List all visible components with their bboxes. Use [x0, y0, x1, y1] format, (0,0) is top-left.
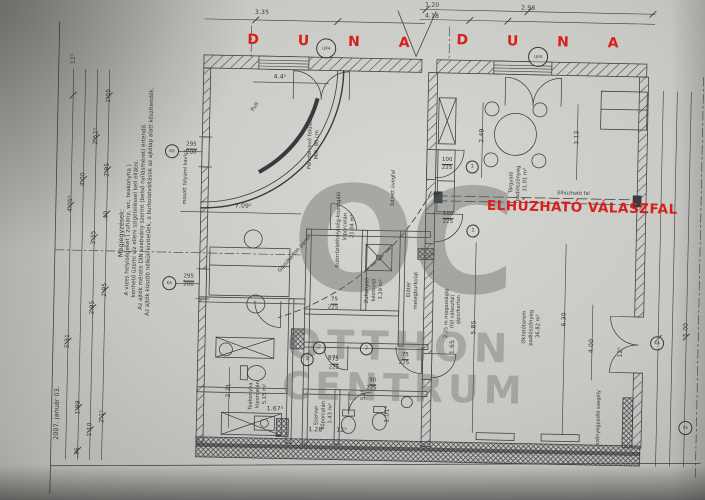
label-room-21: Teakonyha	[249, 382, 255, 410]
scanned-floor-plan-sheet: OCOTTHONCENTRUMD U N AD U N AELHÚZHATÓ V…	[0, 0, 705, 500]
sliding-partition-label: ELHÚZHATÓ VÁLASZFAL	[487, 200, 678, 217]
label-room-26: 1.43 m²	[328, 403, 334, 423]
label-dim-44: 1.05	[106, 89, 112, 103]
duna-label-left: D U N A	[247, 33, 426, 51]
label-dim-71: 1.67⁵	[267, 406, 284, 412]
label-dim-52: 2.95	[90, 300, 96, 314]
label-fden-92: 200	[183, 282, 194, 288]
label-room-33: padlószőnyeg	[529, 310, 535, 346]
label-fden-90: 225	[443, 220, 454, 226]
label-dim-59: 1.20	[425, 2, 439, 8]
label-dim-55: 2.1⁵	[99, 410, 105, 423]
label-dim-68: 4.00	[589, 339, 595, 353]
label-dim-69: 5.00	[683, 323, 689, 337]
label-dim-47: 4.00	[80, 172, 86, 186]
label-circ2-102: K4	[650, 336, 664, 350]
label-dim-46: 2.95	[104, 163, 110, 177]
watermark-centrum: CENTRUM	[282, 367, 527, 410]
sliding-partition-small-label: Elhúzható fal	[557, 191, 590, 197]
label-dim-76: 1.01⁵	[384, 406, 390, 423]
label-dim-58: 3.35	[255, 10, 269, 16]
label-dim-56: 1.10	[87, 422, 93, 436]
label-fden-86: 225	[366, 386, 377, 392]
label-dim-70: 2.21	[226, 383, 232, 397]
label-room-38: Mfé: 90 cm	[315, 130, 321, 159]
label-dim-78: 12⁵	[618, 347, 624, 358]
label-room-37: Pénzfelvevő felület	[308, 120, 314, 169]
label-room-22: klporcelán	[256, 381, 262, 408]
label-room-31: 31.01 m²	[523, 168, 529, 192]
label-dim-48: 4.05⁵	[68, 195, 74, 212]
label-dim-51: 2.95	[102, 283, 108, 297]
label-dim-60: 4.18	[425, 13, 439, 19]
duna-label-right: D U N A	[456, 33, 635, 51]
label-room-29: Tárgyaló	[509, 172, 515, 194]
label-dim-43: 12⁵	[71, 53, 77, 64]
label-room-32: Oktatóterem	[522, 311, 528, 344]
label-room-30: padlószőnyeg	[516, 166, 522, 202]
label-room-27: Előtér	[407, 282, 413, 297]
label-room-18: Zuhanyzó	[365, 278, 371, 304]
label-circ2-103: F4	[678, 421, 692, 435]
label-fden-94: 200	[186, 151, 197, 157]
plan-rotation-wrapper: OCOTTHONCENTRUMD U N AD U N AELHÚZHATÓ V…	[0, 0, 705, 500]
label-circ2-100: K6	[162, 276, 176, 290]
label-dim-62: 4.4⁵	[274, 74, 287, 80]
label-room-17: 21.04 m²	[350, 214, 356, 238]
label-room-24: Szerver	[314, 406, 320, 426]
label-fden-88: 225	[442, 166, 453, 172]
label-dim-64: 2.49	[479, 128, 485, 142]
label-room-16: klporcelán	[343, 213, 349, 240]
label-room-28: melegburkolat	[414, 272, 420, 310]
date-note: 2007. január 03.	[53, 386, 61, 440]
label-room-23: 5.15 m²	[263, 384, 269, 404]
label-dim-77: 1.65	[450, 340, 456, 354]
label-dim-49: 3.35	[91, 230, 97, 244]
label-circ3-104: LJK4	[316, 38, 336, 58]
label-dim-61: 2.98	[521, 5, 535, 11]
label-tiny-42: szőnyegpadló szegély	[596, 390, 602, 445]
label-dim-65: 3.13	[574, 130, 580, 144]
label-tiny-8: Edzett üvegfal	[391, 170, 397, 206]
label-fden-80: 225	[328, 306, 339, 312]
label-note2-14: Az ajtók küszöb nélküli kivitelűek, a bu…	[146, 88, 156, 316]
label-dim-66: 5.85	[471, 320, 477, 334]
label-dim-72: 1.28	[308, 427, 322, 433]
label-dim-67: 6.30	[561, 312, 567, 326]
label-dim-73: 12⁵	[336, 428, 347, 434]
label-dim-57: .36	[75, 447, 81, 457]
label-dim-53: 5.31	[65, 334, 71, 348]
label-room-19: kézmosó	[372, 279, 378, 302]
watermark-oc: OC	[291, 167, 512, 317]
label-room-25: köporcelán	[321, 401, 327, 430]
label-tiny-7: mosott folyami kavics	[183, 150, 189, 205]
label-circ2-101: K6	[165, 144, 179, 158]
label-tiny-41: gipszkarton	[456, 295, 462, 324]
label-room-34: 36.82 m²	[536, 314, 542, 338]
label-dim-50: .40	[104, 211, 110, 221]
plan-text-labels: OCOTTHONCENTRUMD U N AD U N AELHÚZHATÓ V…	[0, 0, 705, 500]
label-circ3-105: LJK4	[528, 47, 548, 67]
label-fden-82: 225	[328, 366, 339, 372]
label-dim-63: 7.09⁵	[235, 204, 252, 210]
label-room-35: Pult	[251, 102, 261, 113]
label-dim-54: 1.98	[75, 400, 81, 414]
label-room-20: 3.29 m²	[379, 279, 385, 299]
label-dim-45: 2.52⁵	[93, 128, 99, 145]
label-fden-84: 225	[399, 361, 410, 367]
